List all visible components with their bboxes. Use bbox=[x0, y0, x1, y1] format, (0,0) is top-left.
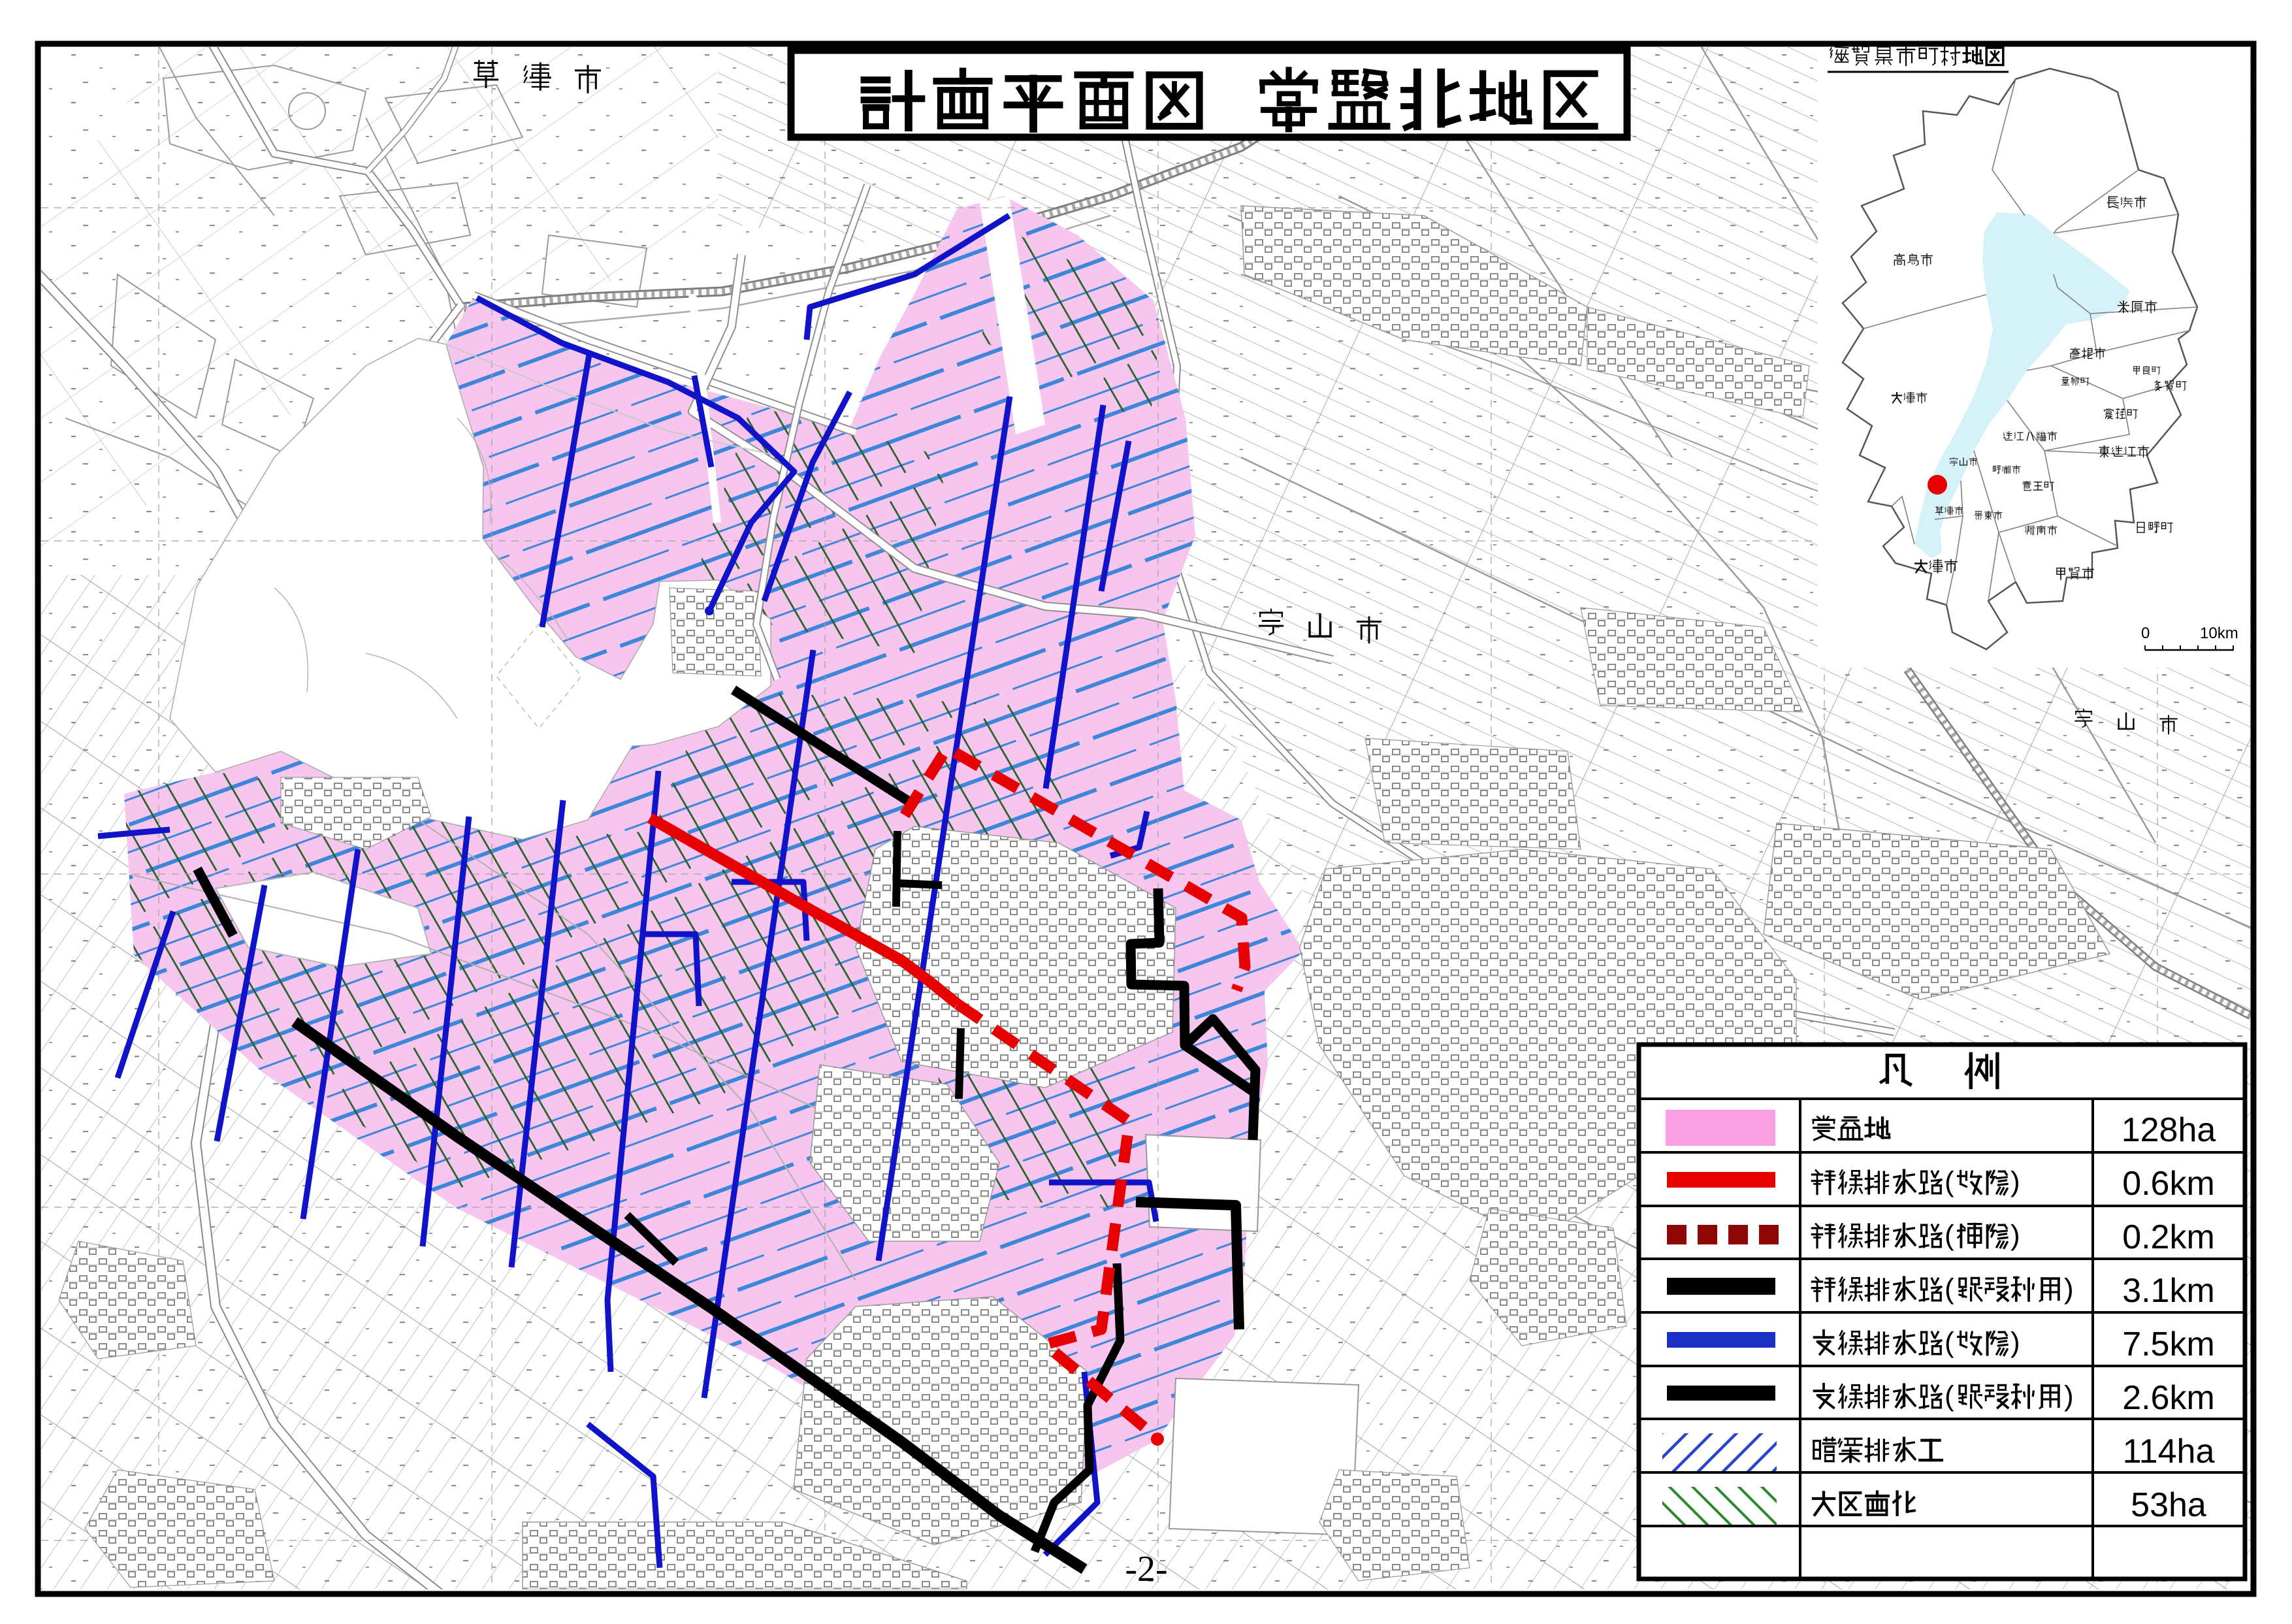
svg-text:): ) bbox=[2064, 1380, 2074, 1412]
svg-text:0: 0 bbox=[2141, 625, 2150, 642]
svg-text:): ) bbox=[2010, 1166, 2020, 1198]
svg-text:128ha: 128ha bbox=[2122, 1111, 2216, 1149]
svg-text:53ha: 53ha bbox=[2131, 1486, 2206, 1524]
svg-text:-2-: -2- bbox=[1125, 1549, 1167, 1589]
svg-text:(: ( bbox=[1945, 1273, 1954, 1305]
svg-text:(: ( bbox=[1945, 1327, 1954, 1359]
svg-text:2.6km: 2.6km bbox=[2122, 1379, 2215, 1417]
svg-text:(: ( bbox=[1945, 1380, 1954, 1412]
svg-text:): ) bbox=[2010, 1327, 2020, 1359]
svg-text:0.6km: 0.6km bbox=[2122, 1165, 2215, 1203]
svg-text:): ) bbox=[2010, 1220, 2020, 1252]
svg-text:(: ( bbox=[1945, 1220, 1954, 1252]
svg-text:114ha: 114ha bbox=[2123, 1433, 2215, 1470]
svg-text:): ) bbox=[2064, 1273, 2074, 1305]
svg-text:7.5km: 7.5km bbox=[2122, 1325, 2215, 1363]
svg-text:(: ( bbox=[1945, 1166, 1954, 1198]
svg-text:3.1km: 3.1km bbox=[2122, 1272, 2215, 1310]
svg-text:10km: 10km bbox=[2200, 625, 2238, 642]
svg-text:0.2km: 0.2km bbox=[2122, 1218, 2215, 1256]
